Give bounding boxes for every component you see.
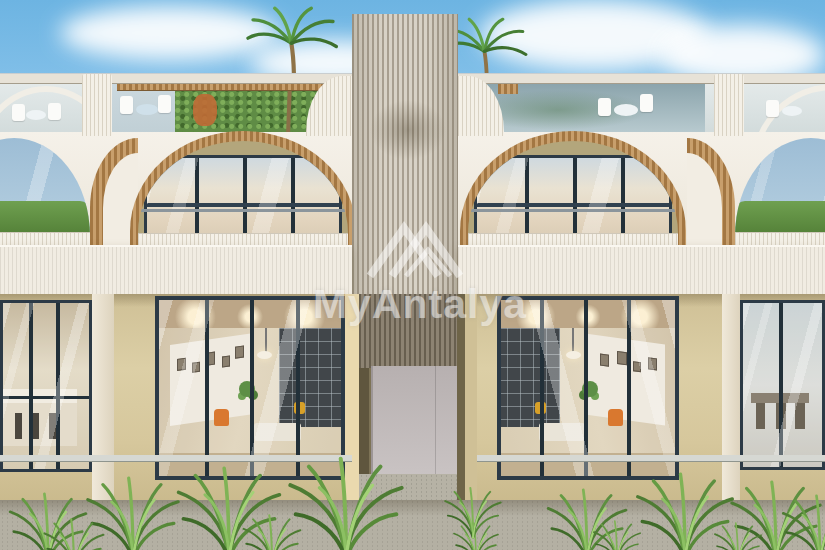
dining-chair — [756, 403, 765, 429]
picture-frame — [648, 357, 657, 370]
white-sofa — [539, 423, 584, 441]
picture-frame — [222, 356, 230, 368]
rooftop-table — [782, 106, 802, 116]
rooftop-chair — [48, 103, 61, 120]
mullion — [621, 158, 625, 244]
pendant-cord — [265, 328, 267, 353]
rooftop-table — [136, 104, 158, 115]
mullion — [525, 158, 529, 244]
transom-bar — [3, 396, 89, 399]
rooftop-table — [614, 104, 638, 116]
dining-chair — [795, 403, 804, 429]
dark-partition-wall — [501, 328, 560, 427]
ribbed-column-left — [82, 74, 112, 136]
picture-frame — [177, 357, 186, 370]
balcony-rail-bar — [138, 209, 348, 212]
pendant-lamp — [257, 351, 272, 359]
mullion — [243, 158, 247, 244]
rooftop-chair — [766, 100, 779, 117]
balcony-rail-bar — [468, 209, 678, 212]
mullion — [291, 158, 295, 244]
pendant-lamp — [566, 351, 581, 359]
mullion — [573, 158, 577, 244]
transom-bar — [477, 203, 669, 207]
picture-frame — [192, 361, 200, 372]
rooftop-chair — [12, 104, 25, 121]
stool — [15, 413, 22, 440]
watermark-logo mountain-peaks-logo — [362, 212, 476, 282]
stool — [32, 413, 39, 440]
orange-armchair — [608, 409, 623, 426]
transom-bar — [147, 203, 339, 207]
white-sofa — [254, 423, 301, 441]
pendant-cord — [572, 328, 574, 353]
dark-partition-wall — [279, 328, 341, 427]
wood-arch-inner — [687, 153, 722, 247]
rooftop-chair — [120, 96, 133, 114]
balcony-interior-right — [468, 141, 678, 247]
balcony-interior-left — [138, 141, 348, 247]
ribbed-column-right — [714, 74, 744, 136]
picture-frame — [633, 361, 641, 372]
picture-frame — [235, 345, 244, 358]
rooftop-orange-plant — [193, 94, 217, 126]
orange-armchair — [214, 409, 229, 426]
rooftop-chair — [640, 94, 653, 112]
ground-floor-rail-right — [477, 455, 825, 462]
gallery-wall — [585, 333, 665, 425]
rooftop-chair — [598, 98, 611, 116]
mullion — [195, 158, 199, 244]
spiky-plant — [556, 520, 678, 550]
glass — [477, 158, 669, 244]
rooftop-chair — [158, 95, 171, 113]
planter-shrubs — [0, 201, 90, 233]
spiky-plant — [440, 486, 506, 540]
watermark-text: MyAntalya — [15, 281, 825, 328]
planter-shrubs — [735, 201, 825, 233]
spiky-plant — [8, 518, 140, 550]
rooftop-table — [26, 110, 46, 120]
gallery-wall — [170, 333, 254, 426]
picture-frame — [616, 350, 626, 364]
architectural-render: MyAntalya — [0, 0, 825, 550]
picture-frame — [600, 353, 609, 366]
spiky-plant — [196, 514, 348, 550]
rooftop-pergola-wood-cap — [498, 84, 518, 94]
palm-shadow — [370, 100, 446, 160]
glass — [147, 158, 339, 244]
spiky-plant — [672, 522, 804, 550]
stool — [49, 413, 56, 440]
